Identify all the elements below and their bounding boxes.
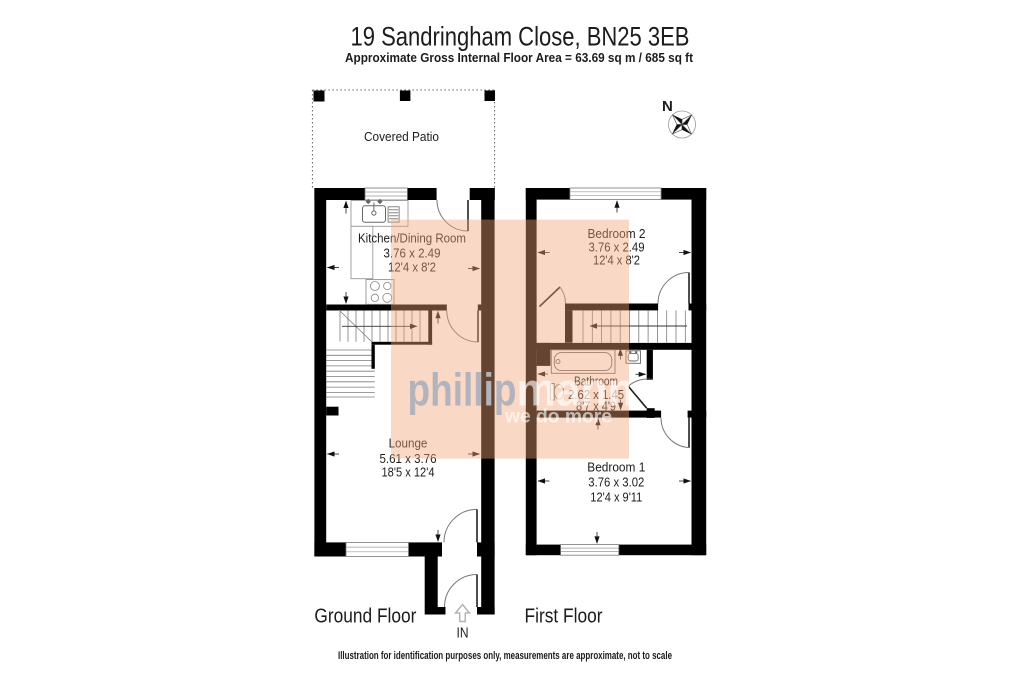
svg-text:18'5 x 12'4: 18'5 x 12'4 [382, 465, 435, 480]
svg-text:Ground Floor: Ground Floor [314, 606, 416, 628]
svg-text:IN: IN [457, 625, 469, 642]
svg-text:19 Sandringham Close, BN25 3EB: 19 Sandringham Close, BN25 3EB [351, 22, 690, 52]
svg-text:12'4 x 9'11: 12'4 x 9'11 [590, 490, 642, 505]
svg-text:First Floor: First Floor [525, 606, 603, 628]
svg-text:Covered Patio: Covered Patio [364, 129, 439, 144]
svg-text:3.76 x 3.02: 3.76 x 3.02 [588, 475, 644, 490]
svg-text:Illustration for identificatio: Illustration for identification purposes… [338, 650, 672, 662]
svg-text:we do more: we do more [504, 407, 612, 428]
svg-text:N: N [662, 98, 673, 115]
svg-text:Approximate Gross Internal Flo: Approximate Gross Internal Floor Area = … [345, 51, 694, 65]
svg-text:Bedroom 1: Bedroom 1 [587, 460, 645, 475]
svg-text:phillip: phillip [408, 364, 517, 416]
